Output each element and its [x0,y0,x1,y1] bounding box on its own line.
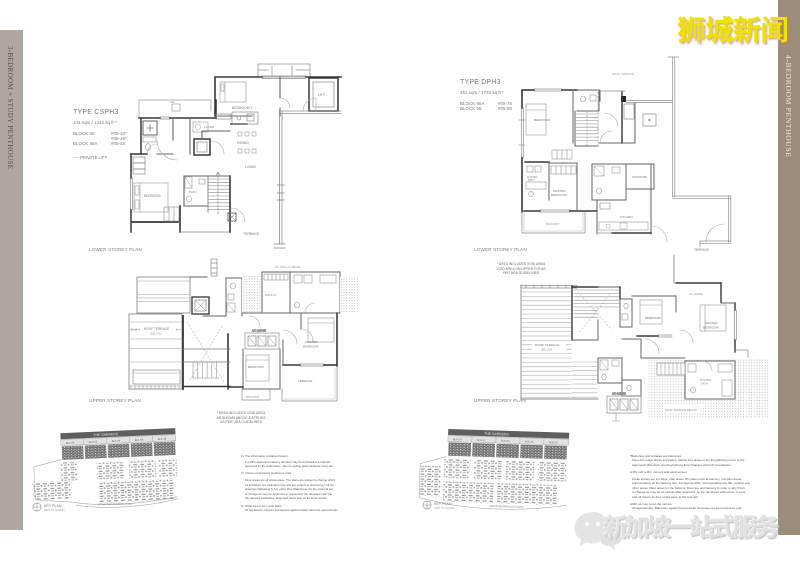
svg-text:TERRACE: TERRACE [298,379,312,383]
svg-text:KITCHEN: KITCHEN [620,215,633,219]
svg-text:MASTER: MASTER [700,378,711,382]
svg-text:TERRACE: TERRACE [694,248,709,252]
svg-text:MASTER: MASTER [705,321,718,325]
svg-text:BLK 66: BLK 66 [525,439,534,443]
svg-text:WARDROBE: WARDROBE [632,175,647,179]
svg-text:A/C LEDGE: A/C LEDGE [612,392,626,396]
svg-text:A/C: A/C [170,100,175,104]
svg-text:DINING: DINING [237,141,249,145]
svg-text:BEDROOM: BEDROOM [303,345,319,349]
svg-text:ROOF TERRACE BELOW: ROOF TERRACE BELOW [665,408,697,412]
svg-text:LIVING: LIVING [245,165,256,169]
svg-text:KEY PLAN: KEY PLAN [434,502,452,506]
svg-text:BLK 62: BLK 62 [89,440,98,444]
svg-text:WALK-IN: WALK-IN [265,293,276,297]
svg-text:RC TRELLIS ABOVE: RC TRELLIS ABOVE [275,265,301,269]
svg-text:BATH: BATH [189,190,197,194]
svg-text:BEDROOM: BEDROOM [248,365,264,369]
svg-text:ROOF TERRACE: ROOF TERRACE [612,72,634,76]
svg-text:BATH: BATH [701,382,708,386]
svg-text:RC LEDGE: RC LEDGE [689,292,703,296]
svg-text:BEDROOM: BEDROOM [144,194,161,198]
svg-text:BLK 62: BLK 62 [477,438,486,442]
svg-text:BLK 60: BLK 60 [66,441,75,445]
svg-text:(BELOW): (BELOW) [150,332,162,336]
svg-text:BLK 66: BLK 66 [135,438,144,442]
svg-text:KEY PLAN: KEY PLAN [44,504,62,508]
svg-text:BEDROOM: BEDROOM [703,326,719,330]
svg-text:(NOT TO SCALE): (NOT TO SCALE) [434,506,455,510]
svg-text:BEDROOM: BEDROOM [645,316,661,320]
svg-text:UPPER SERANGOON ROAD: UPPER SERANGOON ROAD [489,504,524,509]
svg-text:UPPER SERANGOON ROAD: UPPER SERANGOON ROAD [97,502,132,507]
svg-text:ROOF TERRACE: ROOF TERRACE [535,343,560,347]
svg-text:TERRACE: TERRACE [243,232,260,236]
svg-text:BEDROOM: BEDROOM [534,118,550,122]
svg-text:BLK 68: BLK 68 [549,440,558,444]
svg-text:(NOT TO SCALE): (NOT TO SCALE) [44,508,65,512]
svg-text:LIFT: LIFT [318,93,325,97]
svg-text:BATH: BATH [528,179,535,182]
svg-text:ROOF TERRACE: ROOF TERRACE [144,327,169,331]
svg-text:BLK 64: BLK 64 [112,439,121,443]
svg-text:BEDROOM: BEDROOM [551,193,567,197]
svg-text:(BELOW): (BELOW) [541,348,552,352]
svg-text:BALCONY: BALCONY [546,222,560,226]
svg-text:BLK 64: BLK 64 [501,439,510,443]
svg-text:BLK 60: BLK 60 [453,437,462,441]
svg-text:BALCONY: BALCONY [246,395,260,399]
svg-text:BEDROOM 2: BEDROOM 2 [232,106,252,110]
svg-text:THE GARDENS: THE GARDENS [484,432,509,437]
svg-text:BLK 68: BLK 68 [158,437,167,441]
svg-text:A/C LEDGE: A/C LEDGE [252,329,266,333]
svg-text:MASTER: MASTER [305,340,318,344]
svg-text:FOYER: FOYER [204,125,214,129]
